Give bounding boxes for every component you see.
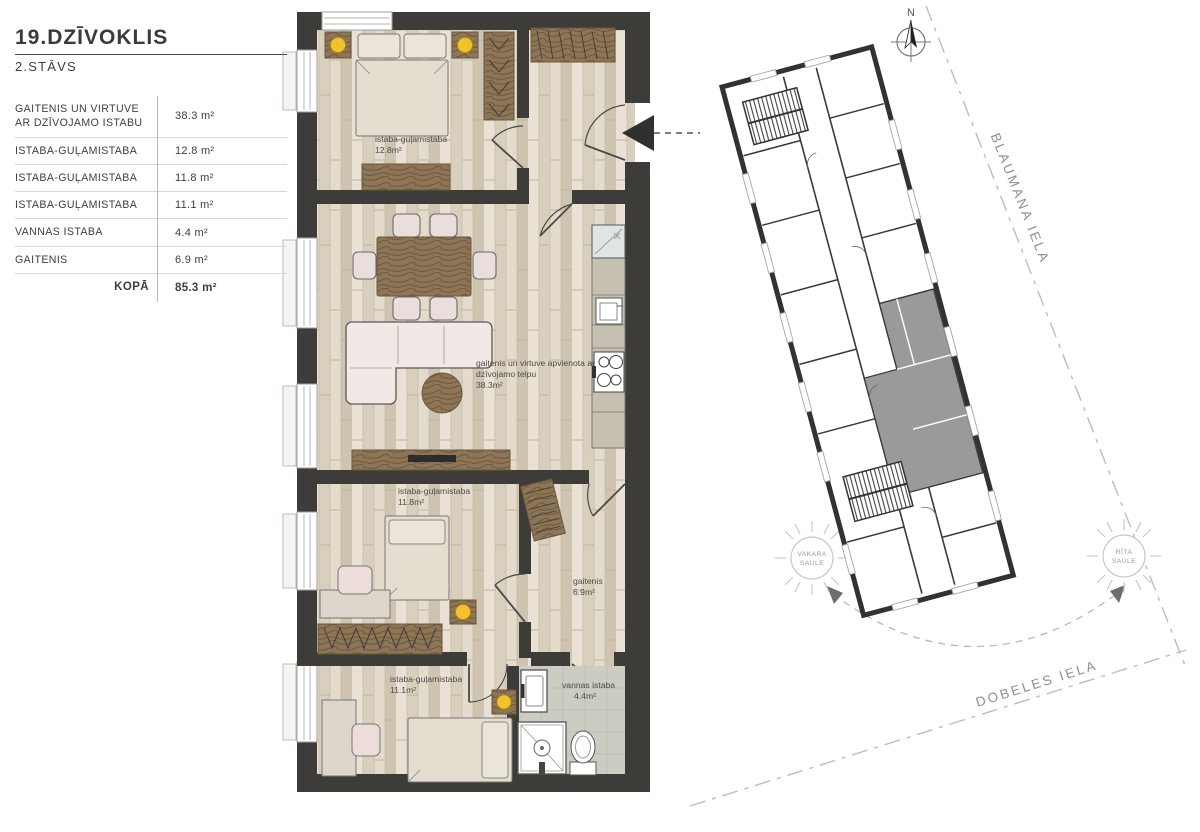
wardrobe	[318, 624, 442, 654]
lamp-icon	[331, 38, 346, 53]
floor-subtitle: 2.STĀVS	[15, 59, 287, 74]
sun-label-east-2: SAULE	[1112, 558, 1136, 565]
room-area: 6.9 m²	[157, 254, 208, 266]
room-name: GAITENIS UN VIRTUVE AR DZĪVOJAMO ISTABU	[15, 102, 157, 131]
single-bed	[408, 718, 512, 782]
room-area-corridor: 6.9m²	[573, 587, 595, 597]
room-label-bedroom2: istaba-guļamistaba	[398, 486, 470, 496]
room-label-bathroom: vannas istaba	[562, 680, 615, 690]
room-name: ISTABA-GUĻAMISTABA	[15, 144, 157, 158]
table-row-total: KOPĀ 85.3 m²	[15, 274, 287, 302]
sun-icon-east: RĪTA SAULE	[1087, 519, 1161, 593]
room-area: 38.3 m²	[157, 110, 214, 122]
compass-north-label: N	[907, 7, 915, 19]
cooktop	[592, 352, 624, 392]
coffee-table	[422, 373, 462, 413]
single-bed	[385, 516, 449, 600]
area-table: GAITENIS UN VIRTUVE AR DZĪVOJAMO ISTABU …	[15, 96, 287, 302]
shower	[518, 722, 566, 774]
oven	[596, 298, 622, 324]
apartment-plan: istaba-guļamistaba 12.8m² gaitenis un vi…	[283, 12, 700, 792]
entry-closet	[531, 28, 615, 62]
compass-icon: N	[891, 7, 931, 62]
table-row: GAITENIS UN VIRTUVE AR DZĪVOJAMO ISTABU …	[15, 96, 287, 138]
chair	[338, 566, 372, 594]
site-plan: BLAUMANA IELA DOBELES IELA VAKARA SAULE	[690, 6, 1186, 806]
total-area: 85.3 m²	[157, 282, 217, 294]
room-label-living-2: dzīvojamo telpu	[476, 369, 536, 379]
room-label-bedroom3: istaba-guļamistaba	[390, 674, 462, 684]
room-area-bathroom: 4.4m²	[574, 691, 596, 701]
table-row: ISTABA-GUĻAMISTABA 12.8 m²	[15, 138, 287, 165]
room-area-bedroom1: 12.8m²	[375, 145, 402, 155]
sun-label-west-2: SAULE	[800, 560, 824, 567]
sun-label-west-1: VAKARA	[797, 551, 827, 558]
room-name: ISTABA-GUĻAMISTABA	[15, 171, 157, 185]
room-area: 12.8 m²	[157, 145, 214, 157]
floorplan-sheet: istaba-guļamistaba 12.8m² gaitenis un vi…	[0, 0, 1200, 832]
desk	[322, 700, 356, 776]
table-row: ISTABA-GUĻAMISTABA 11.1 m²	[15, 192, 287, 219]
sun-label-east-1: RĪTA	[1116, 548, 1133, 556]
lamp-icon	[456, 605, 471, 620]
apartment-title: 19.DZĪVOKLIS	[15, 26, 287, 55]
toilet	[570, 731, 596, 775]
washing-machine	[521, 670, 547, 712]
room-label-living-1: gaitenis un virtuve apvienota ar	[476, 358, 595, 368]
lamp-icon	[458, 38, 473, 53]
room-area-bedroom3: 11.1m²	[390, 685, 416, 695]
room-name: GAITENIS	[15, 253, 157, 267]
building-keyplan	[718, 43, 1017, 619]
room-area-bedroom2: 11.8m²	[398, 497, 424, 507]
table-row: VANNAS ISTABA 4.4 m²	[15, 219, 287, 246]
wardrobe	[484, 32, 514, 120]
total-label: KOPĀ	[15, 280, 157, 296]
legend-panel: 19.DZĪVOKLIS 2.STĀVS GAITENIS UN VIRTUVE…	[15, 26, 287, 302]
room-area: 11.8 m²	[157, 172, 214, 184]
lamp-icon	[497, 695, 511, 709]
room-area: 11.1 m²	[157, 199, 214, 211]
street-line-dobeles	[690, 650, 1186, 806]
dresser	[362, 164, 450, 190]
sun-icon-west: VAKARA SAULE	[775, 521, 849, 595]
tv-bench	[352, 450, 510, 470]
room-area-living: 38.3m²	[476, 380, 503, 390]
room-area: 4.4 m²	[157, 227, 208, 239]
room-name: ISTABA-GUĻAMISTABA	[15, 198, 157, 212]
room-name: VANNAS ISTABA	[15, 225, 157, 239]
chair	[352, 724, 380, 756]
room-label-corridor: gaitenis	[573, 576, 603, 586]
street-label-blaumana: BLAUMANA IELA	[988, 131, 1053, 266]
fridge	[592, 225, 625, 258]
table-row: ISTABA-GUĻAMISTABA 11.8 m²	[15, 165, 287, 192]
room-label-bedroom1: istaba-guļamistaba	[375, 134, 447, 144]
table-row: GAITENIS 6.9 m²	[15, 247, 287, 274]
